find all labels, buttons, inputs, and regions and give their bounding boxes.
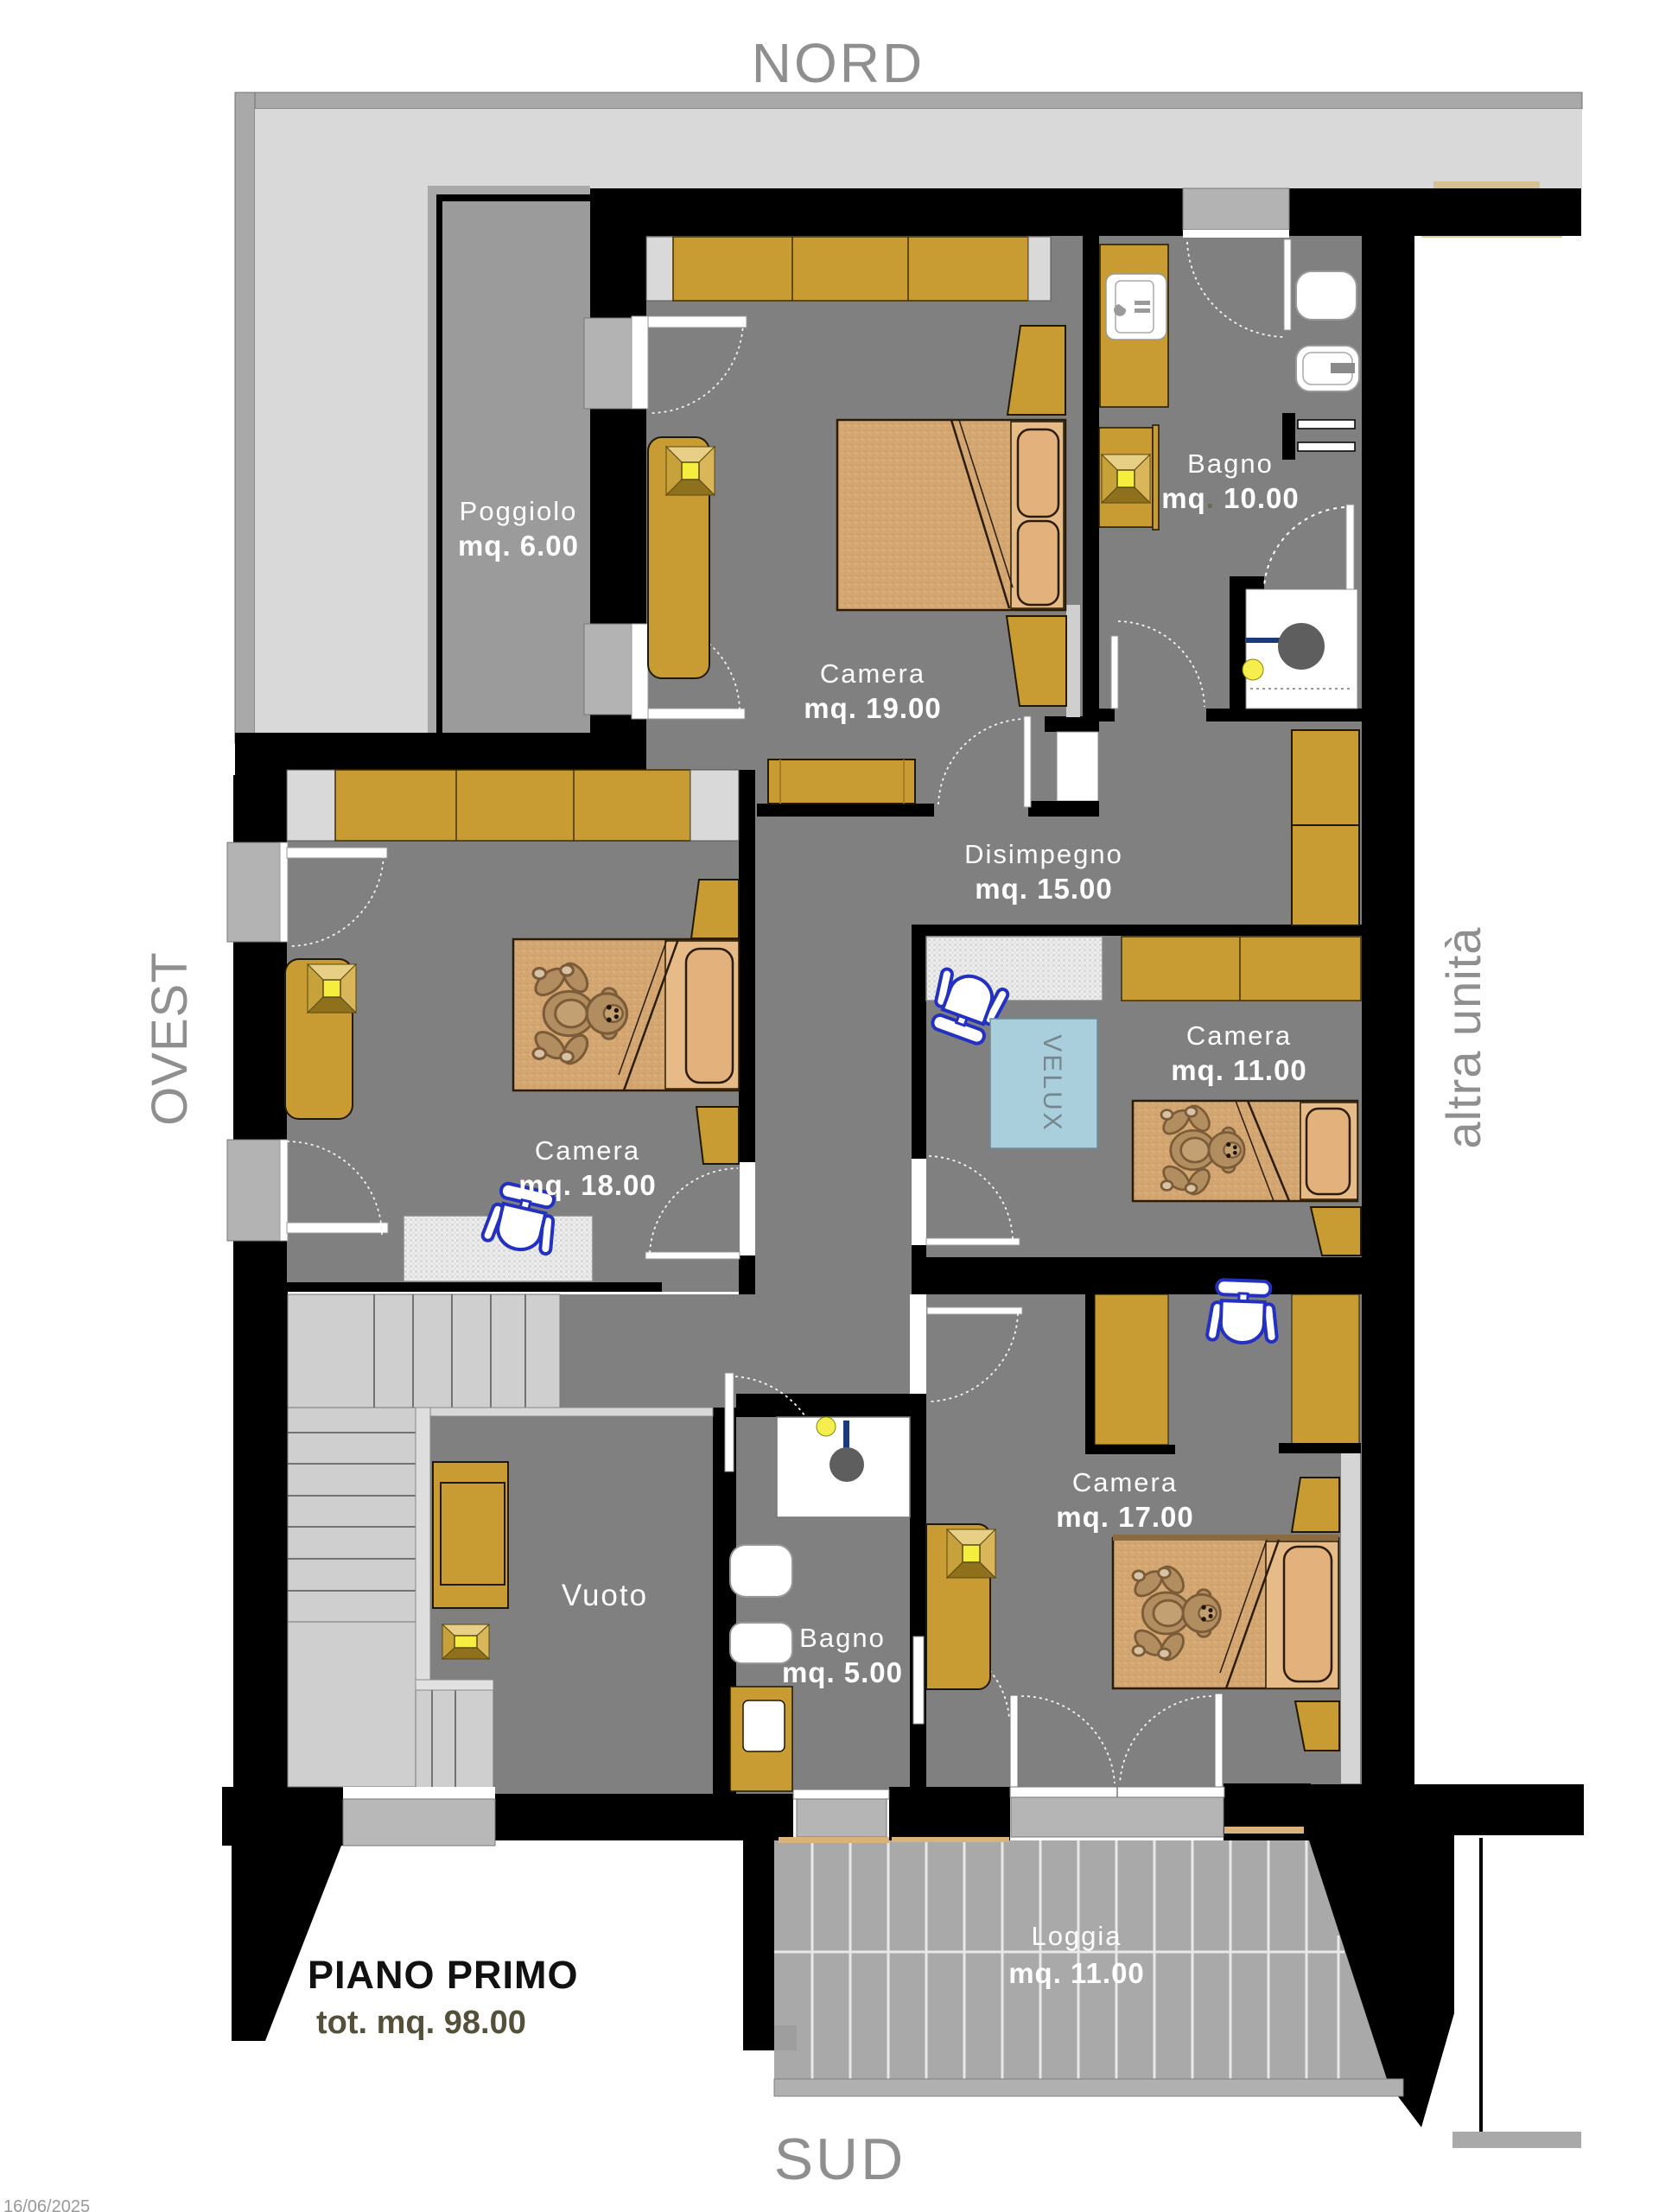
svg-text:Camera: Camera bbox=[820, 658, 925, 689]
svg-text:mq. 5.00: mq. 5.00 bbox=[782, 1656, 903, 1688]
svg-text:Camera: Camera bbox=[1072, 1467, 1178, 1497]
svg-text:Loggia: Loggia bbox=[1031, 1921, 1122, 1951]
svg-text:mq. 19.00: mq. 19.00 bbox=[804, 692, 941, 724]
svg-text:16/06/2025: 16/06/2025 bbox=[3, 2197, 90, 2212]
svg-text:OVEST: OVEST bbox=[142, 951, 198, 1126]
svg-text:mq. 17.00: mq. 17.00 bbox=[1056, 1501, 1193, 1533]
svg-text:mq. 11.00: mq. 11.00 bbox=[1171, 1054, 1307, 1086]
svg-text:Disimpegno: Disimpegno bbox=[964, 839, 1123, 869]
svg-text:PIANO PRIMO: PIANO PRIMO bbox=[308, 1953, 579, 1997]
svg-text:Camera: Camera bbox=[1186, 1020, 1292, 1051]
svg-text:Bagno: Bagno bbox=[799, 1623, 886, 1653]
svg-text:mq. 15.00: mq. 15.00 bbox=[975, 873, 1112, 905]
svg-text:mq. 11.00: mq. 11.00 bbox=[1008, 1957, 1145, 1989]
svg-text:Poggiolo: Poggiolo bbox=[460, 496, 578, 526]
svg-text:mq. 18.00: mq. 18.00 bbox=[518, 1169, 656, 1201]
svg-text:mq. 6.00: mq. 6.00 bbox=[458, 530, 579, 562]
svg-text:altra unità: altra unità bbox=[1436, 927, 1491, 1149]
svg-text:mq. 10.00: mq. 10.00 bbox=[1161, 482, 1299, 514]
svg-text:Vuoto: Vuoto bbox=[562, 1579, 648, 1612]
svg-text:SUD: SUD bbox=[774, 2126, 906, 2192]
svg-text:VELUX: VELUX bbox=[1038, 1034, 1066, 1132]
svg-text:NORD: NORD bbox=[752, 32, 925, 94]
svg-text:tot. mq. 98.00: tot. mq. 98.00 bbox=[316, 2005, 526, 2041]
svg-text:Camera: Camera bbox=[535, 1135, 640, 1166]
svg-text:Bagno: Bagno bbox=[1187, 448, 1274, 479]
